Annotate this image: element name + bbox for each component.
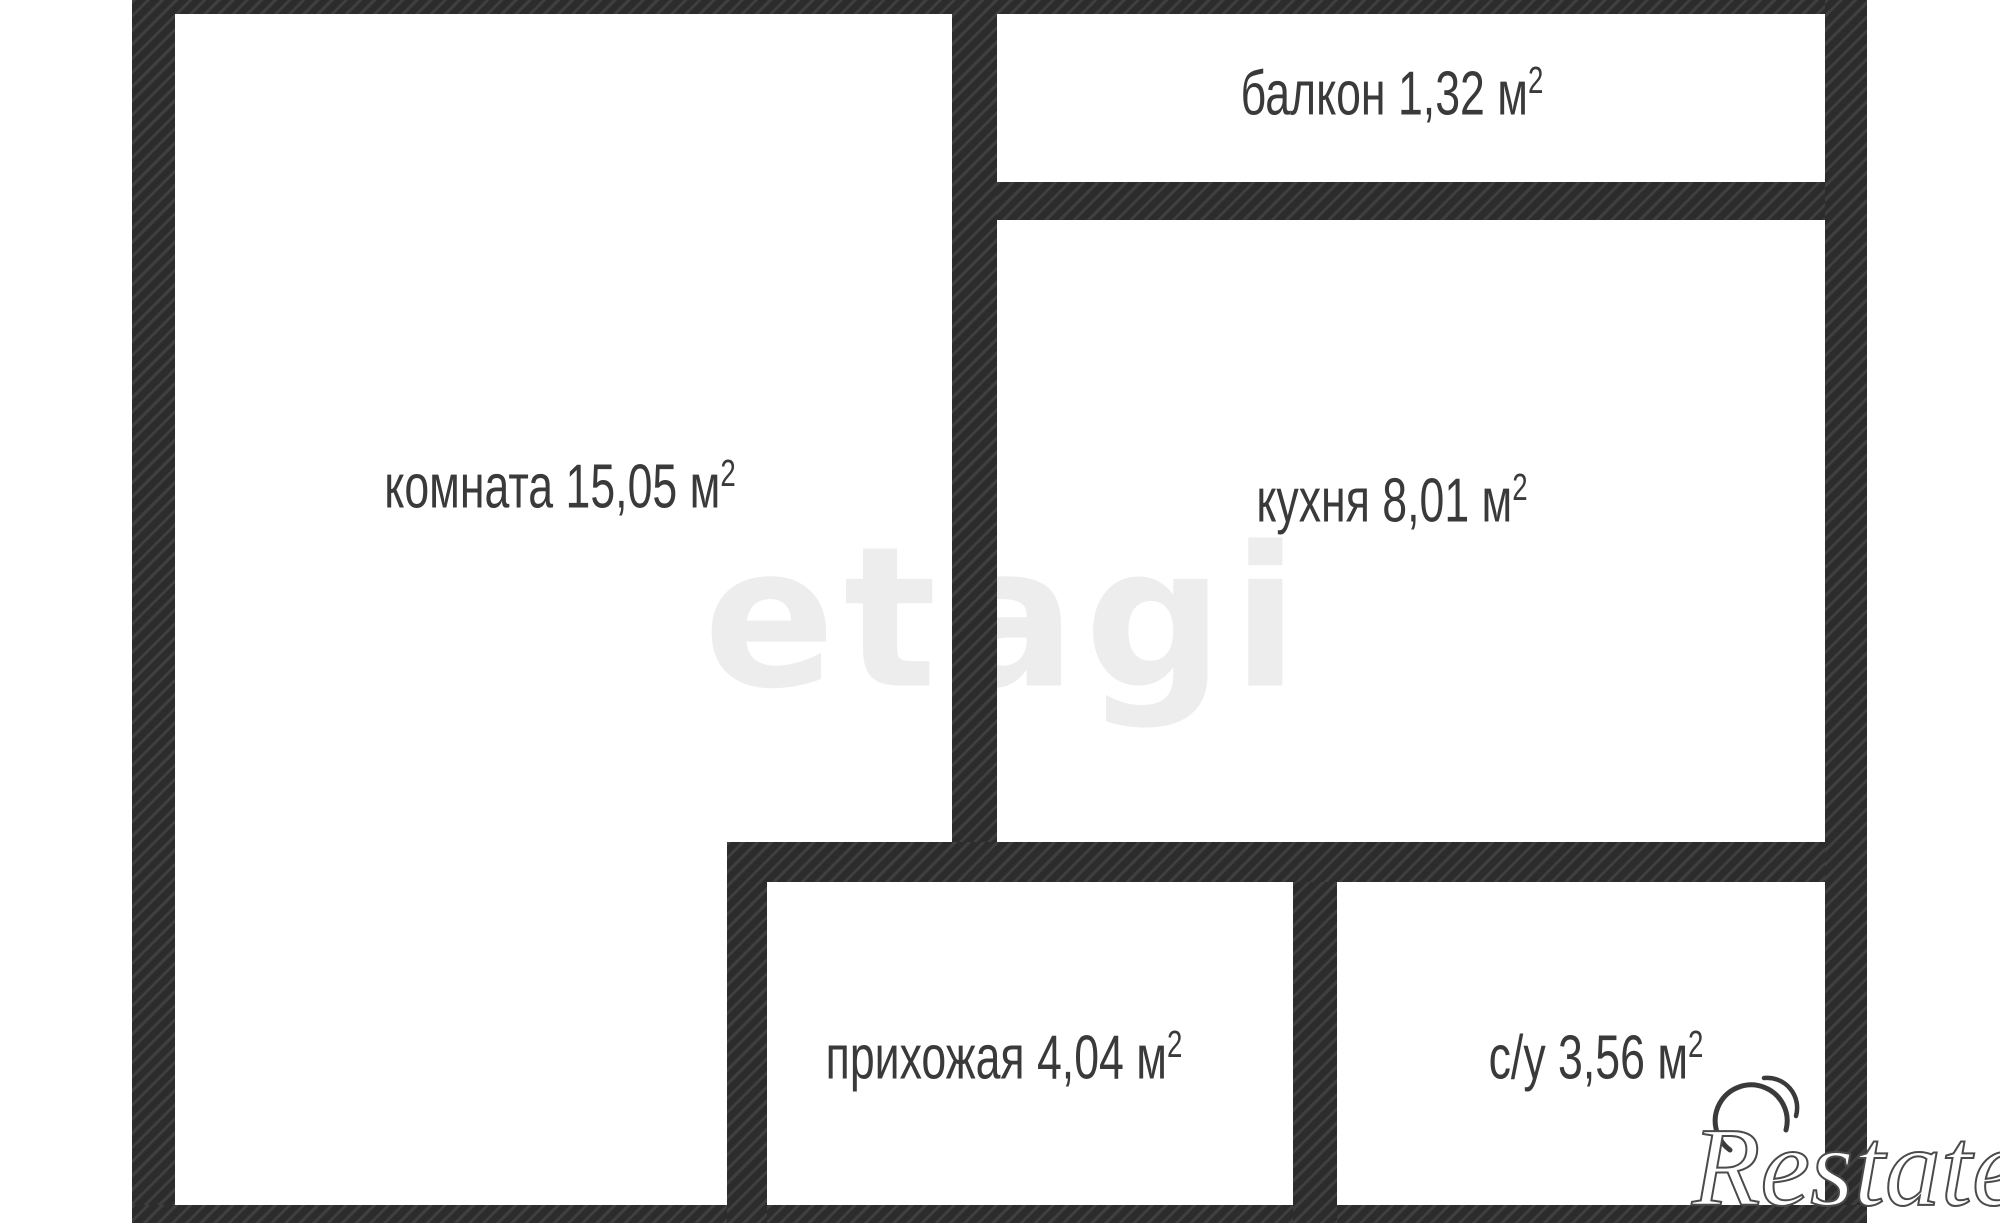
- room-label-su-sup: 2: [1688, 1023, 1703, 1066]
- wall-bottom: [132, 1205, 1867, 1223]
- room-label-prihozhaya: прихожая 4,04 м2: [826, 1023, 1183, 1094]
- wall-top: [132, 0, 1867, 14]
- restate-brand-watermark: Restate: [1692, 1112, 2000, 1223]
- room-label-su-text: с/у 3,56 м: [1489, 1024, 1688, 1093]
- wall-balcony-bottom: [997, 182, 1825, 220]
- wall-kitchen-bottom: [727, 842, 1825, 882]
- floor-plan: etagi комната 15,05 м2 балкон 1,32 м2 ку…: [0, 0, 2000, 1223]
- room-label-prihozhaya-sup: 2: [1167, 1023, 1182, 1066]
- room-label-su: с/у 3,56 м2: [1489, 1023, 1704, 1094]
- room-label-kuhnya-text: кухня 8,01 м: [1256, 467, 1512, 536]
- room-label-komnata-sup: 2: [720, 452, 735, 495]
- wall-hallway-left: [727, 842, 767, 1223]
- wall-hallway-bath-divider: [1293, 882, 1337, 1223]
- room-label-komnata: комната 15,05 м2: [384, 452, 735, 523]
- room-label-balkon: балкон 1,32 м2: [1241, 59, 1544, 130]
- room-label-balkon-text: балкон 1,32 м: [1241, 60, 1528, 129]
- room-label-balkon-sup: 2: [1528, 59, 1543, 102]
- room-label-kuhnya: кухня 8,01 м2: [1256, 466, 1527, 537]
- etagi-watermark: etagi: [703, 505, 1306, 732]
- wall-left: [132, 0, 175, 1223]
- room-label-kuhnya-sup: 2: [1512, 466, 1527, 509]
- wall-right: [1825, 0, 1867, 1223]
- room-label-komnata-text: комната 15,05 м: [384, 453, 720, 522]
- room-label-prihozhaya-text: прихожая 4,04 м: [826, 1024, 1167, 1093]
- wall-room-kitchen-divider: [952, 0, 997, 882]
